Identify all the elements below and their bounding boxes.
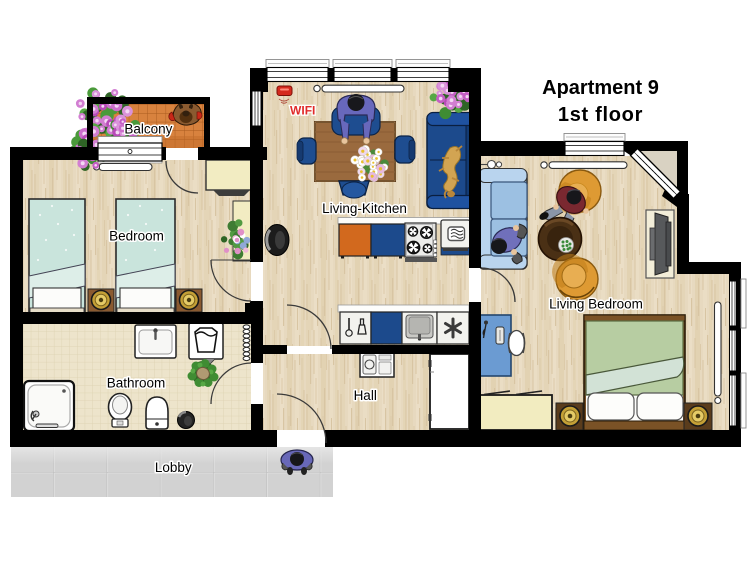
svg-text:Balcony: Balcony [124,122,172,137]
svg-text:WIFI: WIFI [290,104,315,118]
svg-text:Living Bedroom: Living Bedroom [549,297,643,312]
svg-text:Lobby: Lobby [155,460,192,475]
svg-text:Living-Kitchen: Living-Kitchen [322,201,407,216]
svg-text:1st floor: 1st floor [558,104,643,126]
svg-text:Bedroom: Bedroom [109,229,164,244]
svg-text:Hall: Hall [354,388,377,403]
svg-text:Apartment 9: Apartment 9 [542,77,659,99]
svg-text:Bathroom: Bathroom [107,376,166,391]
